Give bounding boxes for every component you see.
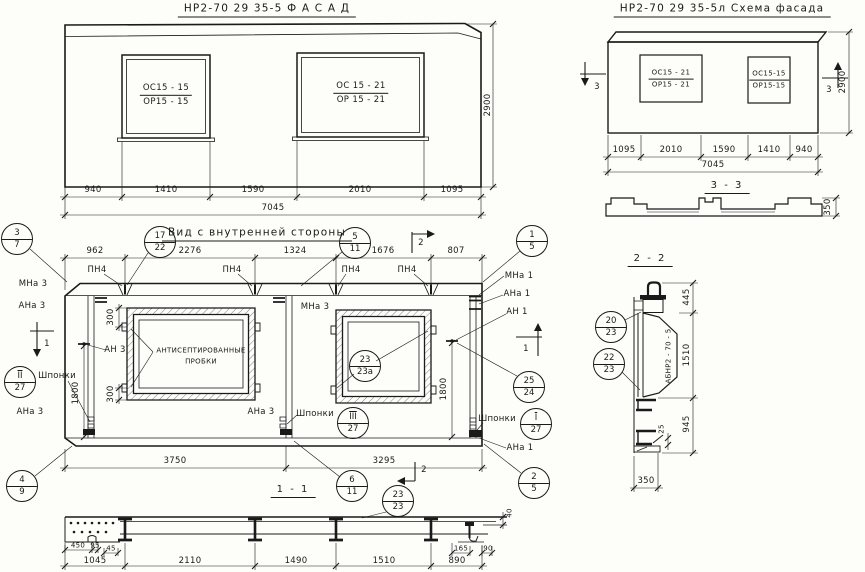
dim-350: 350: [824, 198, 833, 215]
dim-1410: 1410: [155, 186, 178, 195]
dim-1510: 1510: [683, 344, 692, 367]
dim-3295: 3295: [373, 457, 396, 466]
dim-890: 890: [448, 557, 465, 566]
label-ana3-bottom-mid: АНа 3: [247, 408, 274, 417]
frame-type-label: ОР 15 - 21: [337, 94, 386, 106]
callout-2-5: 25: [518, 467, 550, 499]
label-shponki-left: Шпонки: [38, 372, 76, 381]
scheme-window2-mark: ОС15-15 ОР15-15: [749, 70, 789, 91]
section-2-2-title: 2 - 2: [628, 253, 673, 267]
section-marker-2-top: 2: [418, 239, 424, 248]
dim-2276: 2276: [179, 247, 202, 256]
scheme-window1-mark: ОС15 - 21 ОР15 - 21: [649, 69, 694, 90]
dim-3750: 3750: [164, 457, 187, 466]
dim-height-2900: 2900: [484, 94, 493, 117]
dim-1045: 1045: [84, 557, 107, 566]
facade-view: [60, 21, 497, 219]
window-type-label: ОС 15 - 21: [333, 81, 388, 94]
callout-5-11: 511: [339, 227, 371, 259]
dim-1095: 1095: [613, 146, 636, 155]
dim-945: 945: [683, 415, 692, 432]
label-shponki-right: Шпонки: [478, 415, 516, 424]
label-mna3-mid: МНа 3: [301, 303, 330, 312]
callout-22-23: 2223: [593, 348, 625, 380]
label-mna3-left: МНа 3: [19, 280, 48, 289]
section-2-2: [622, 280, 698, 492]
label-an1: АН 1: [506, 308, 528, 317]
frame-type-label: ОР15-15: [753, 81, 786, 91]
dim-165: 165: [454, 546, 468, 553]
callout-17-22: 1722: [144, 226, 176, 258]
plug-note-line2: ПРОБКИ: [185, 359, 217, 366]
callout-II-27: II27: [4, 366, 36, 398]
label-mna1: МНа 1: [505, 272, 534, 281]
technical-drawing-sheet: НР2-70 29 35-5 Ф А С А Д НР2-70 29 35-5л…: [0, 0, 865, 572]
section-marker-3-right: 3: [826, 86, 832, 95]
drawing-linework: [0, 0, 865, 572]
window-type-label: ОС15-15: [749, 70, 789, 81]
callout-III-27: III27: [337, 407, 369, 439]
dim-25: 25: [659, 424, 666, 434]
label-ana1-bottom: АНа 1: [506, 444, 533, 453]
dim-height-2900: 2900: [839, 71, 848, 94]
callout-3-7: 37: [1, 223, 33, 255]
dim-450: 450: [71, 543, 85, 550]
section-marker-1-right: 1: [523, 345, 529, 354]
dim-1410: 1410: [758, 146, 781, 155]
facade-window1-mark: ОС15 - 15 ОР15 - 15: [140, 83, 192, 107]
window-type-label: ОС15 - 21: [649, 69, 694, 80]
callout-6-11: 611: [336, 470, 368, 502]
dim-2010: 2010: [349, 186, 372, 195]
label-ana3-left: АНа 3: [18, 302, 45, 311]
section-3-3-title: 3 - 3: [705, 180, 750, 194]
panel-stamp-abnr2-70-5: АБНР2 - 70 - 5: [666, 328, 673, 383]
label-ana1-top: АНа 1: [503, 290, 530, 299]
label-pn4-1: ПН4: [87, 266, 106, 275]
inner-view-title: Вид с внутренней стороны: [162, 227, 352, 242]
dim-40: 40: [507, 508, 514, 518]
dim-300-top: 300: [107, 308, 116, 325]
dim-1095: 1095: [441, 186, 464, 195]
dim-1324: 1324: [284, 247, 307, 256]
dim-1800-left: 1800: [72, 382, 81, 405]
dim-940: 940: [84, 186, 101, 195]
callout-4-9: 49: [6, 470, 38, 502]
dim-2010: 2010: [660, 146, 683, 155]
label-ana3-bottom-left: АНа 3: [16, 408, 43, 417]
frame-type-label: ОР15 - 15: [143, 96, 189, 108]
facade-title: НР2-70 29 35-5 Ф А С А Д: [178, 3, 356, 18]
section-marker-2-bottom: 2: [421, 466, 427, 475]
label-pn4-4: ПН4: [397, 266, 416, 275]
dim-total-7045: 7045: [702, 161, 725, 170]
callout-I-27: I27: [520, 408, 552, 440]
callout-20-23: 2023: [595, 311, 627, 343]
section-1-1: [60, 512, 507, 570]
section-marker-3-left: 3: [594, 83, 600, 92]
callout-1-5: 15: [516, 225, 548, 257]
inner-view: [30, 230, 542, 485]
section-marker-1-left: 1: [44, 340, 50, 349]
dim-1490: 1490: [285, 557, 308, 566]
dim-95: 95: [90, 543, 100, 550]
dim-total-7045: 7045: [262, 204, 285, 213]
dim-350: 350: [637, 477, 654, 486]
scheme-title: НР2-70 29 35-5л Схема фасада: [614, 3, 831, 18]
window-type-label: ОС15 - 15: [140, 83, 192, 96]
dim-940: 940: [795, 146, 812, 155]
label-pn4-2: ПН4: [222, 266, 241, 275]
label-an3: АН 3: [104, 346, 126, 355]
dim-1590: 1590: [713, 146, 736, 155]
dim-1510: 1510: [373, 557, 396, 566]
dim-300-bottom: 300: [107, 385, 116, 402]
callout-23-23: 2323: [382, 485, 414, 517]
dim-445: 445: [683, 288, 692, 305]
dim-1590: 1590: [242, 186, 265, 195]
callout-23-23a: 2323а: [349, 350, 381, 382]
dim-45: 45: [106, 546, 116, 553]
label-shponki-mid: Шпонки: [296, 410, 334, 419]
dim-962: 962: [86, 247, 103, 256]
dim-90: 90: [483, 546, 493, 553]
label-pn4-3: ПН4: [341, 266, 360, 275]
section-3-3: [606, 195, 840, 219]
callout-25-24: 2524: [513, 371, 545, 403]
dim-2110: 2110: [179, 557, 202, 566]
plug-note-line1: АНТИСЕПТИРОВАННЫЕ: [156, 348, 245, 355]
frame-type-label: ОР15 - 21: [652, 80, 690, 90]
dim-1676: 1676: [372, 247, 395, 256]
dim-1800-right: 1800: [440, 378, 449, 401]
section-1-1-title: 1 - 1: [271, 484, 316, 498]
dim-807: 807: [447, 247, 464, 256]
facade-window2-mark: ОС 15 - 21 ОР 15 - 21: [333, 81, 388, 105]
